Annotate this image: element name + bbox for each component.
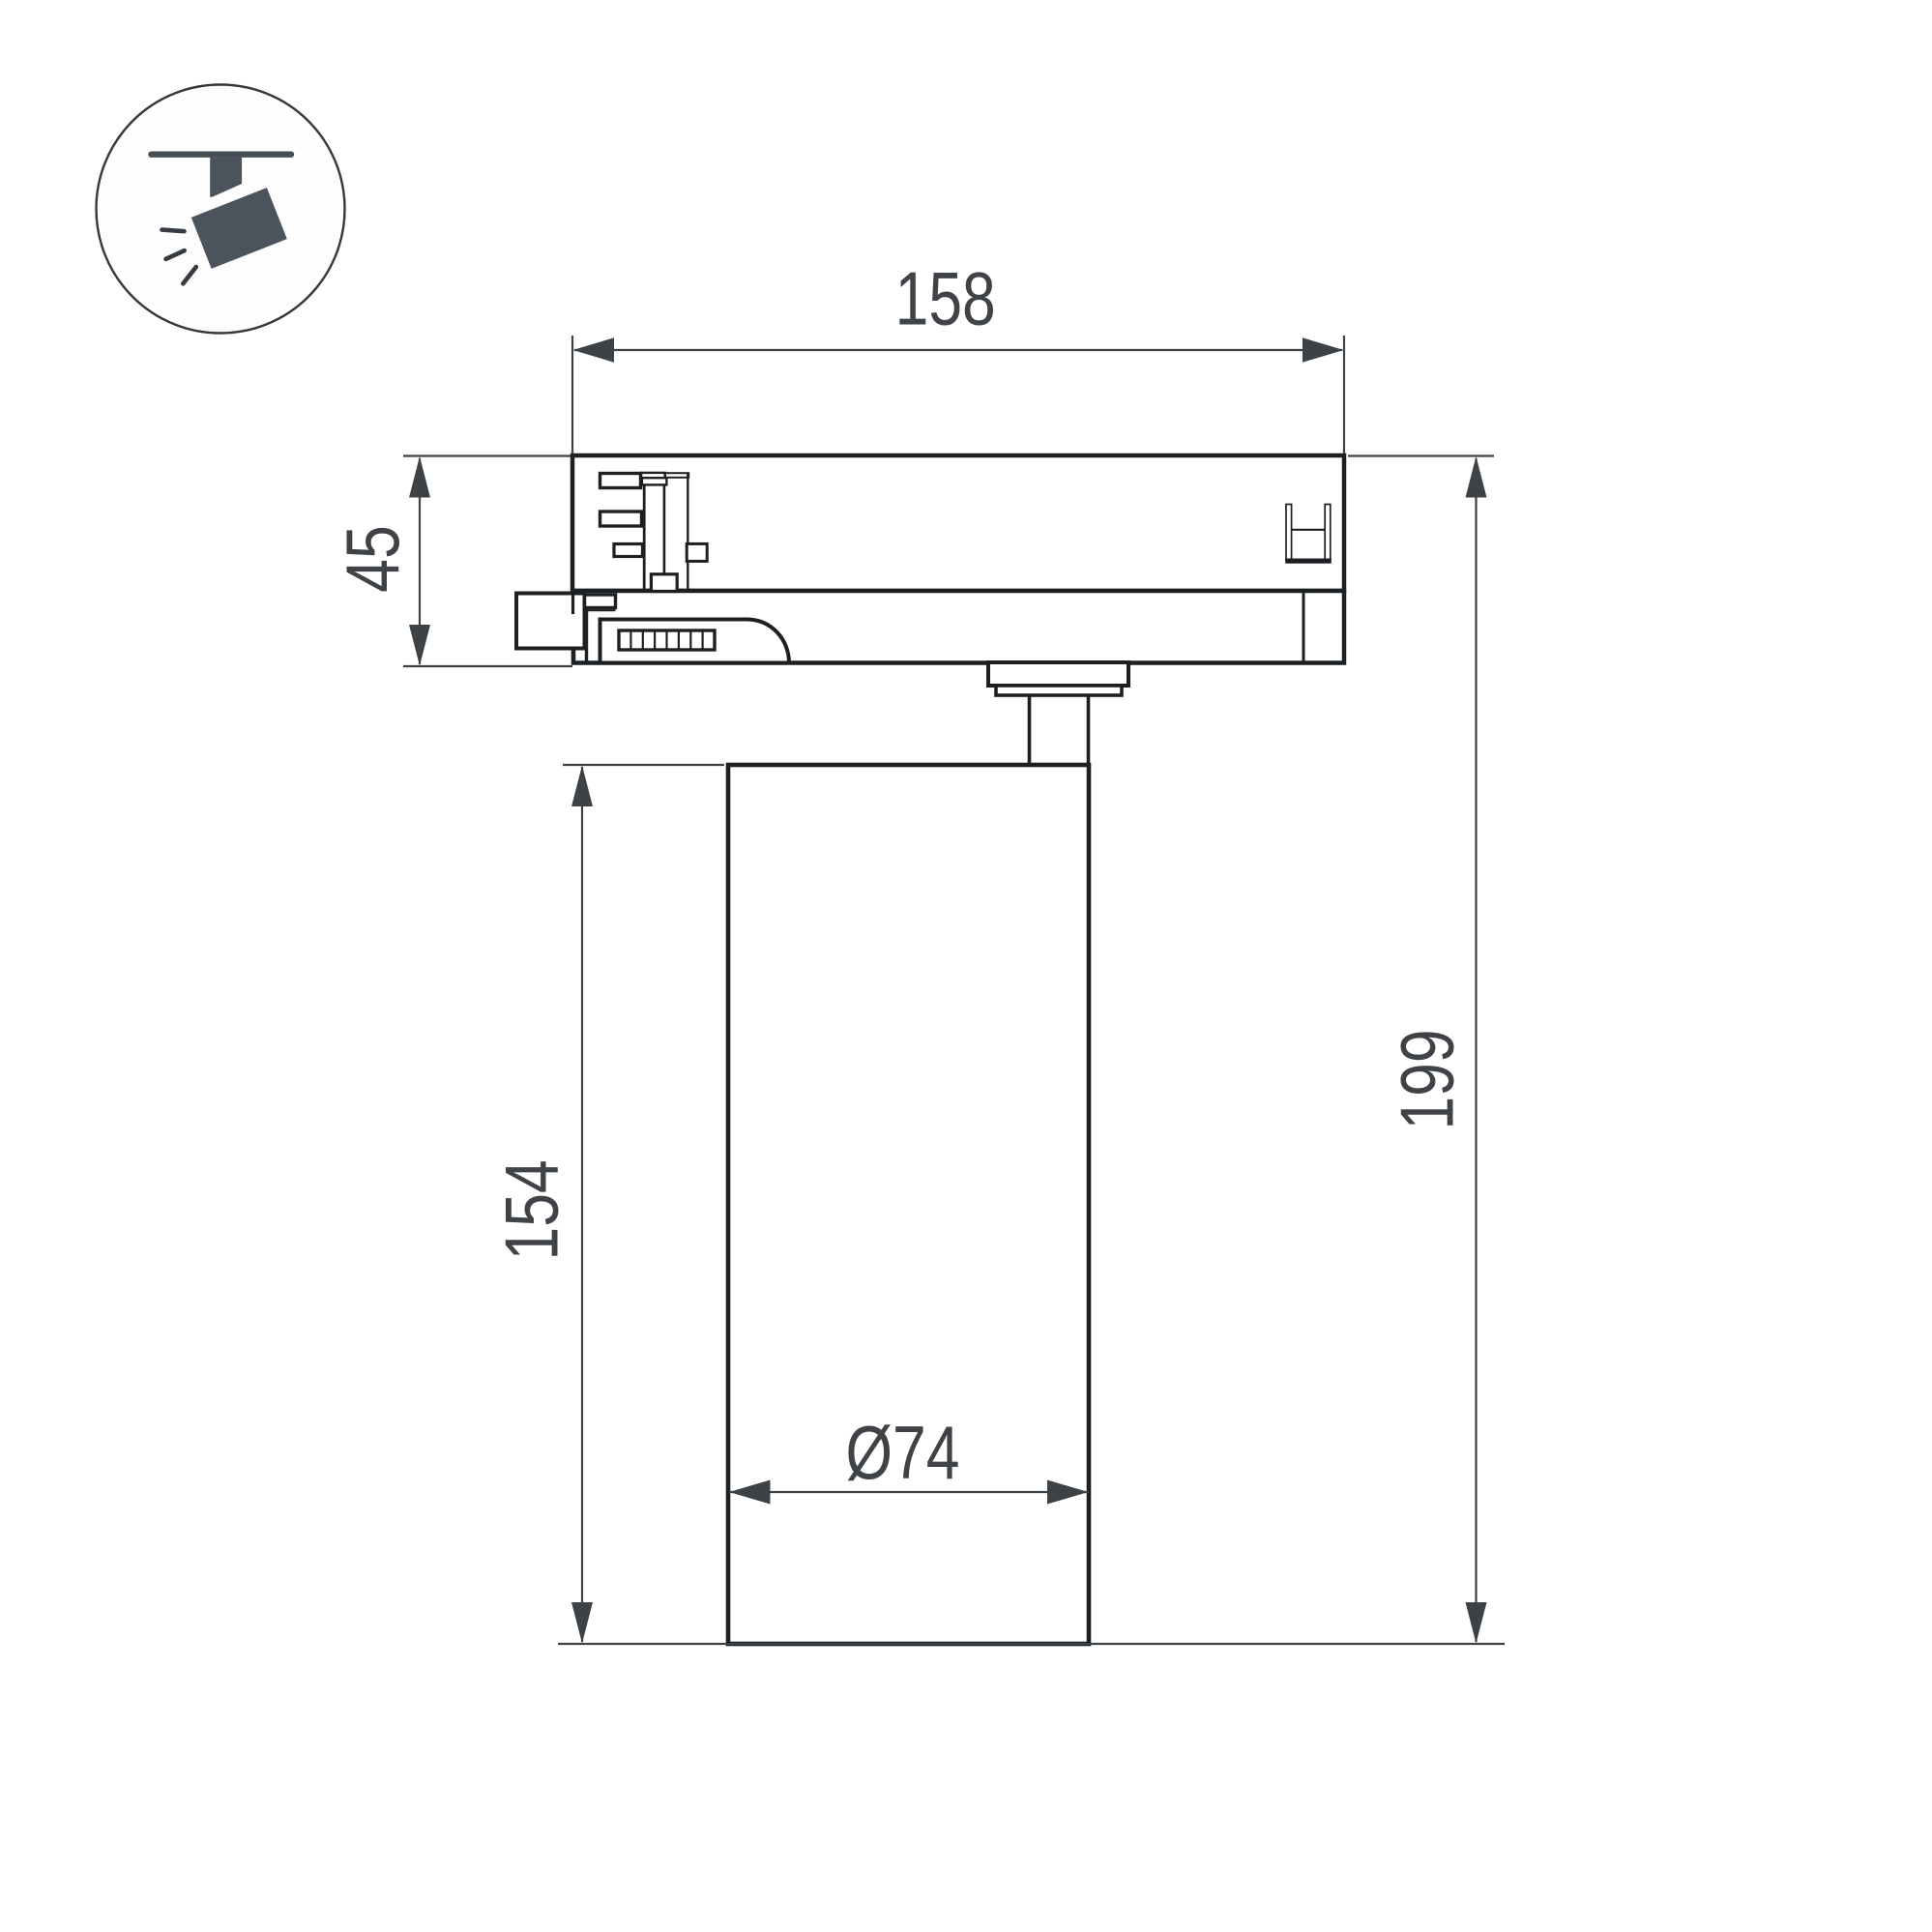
- svg-text:199: 199: [1385, 1029, 1469, 1129]
- svg-text:45: 45: [330, 525, 414, 592]
- svg-text:154: 154: [489, 1159, 573, 1260]
- svg-text:158: 158: [895, 256, 996, 340]
- svg-text:Ø74: Ø74: [846, 1410, 960, 1494]
